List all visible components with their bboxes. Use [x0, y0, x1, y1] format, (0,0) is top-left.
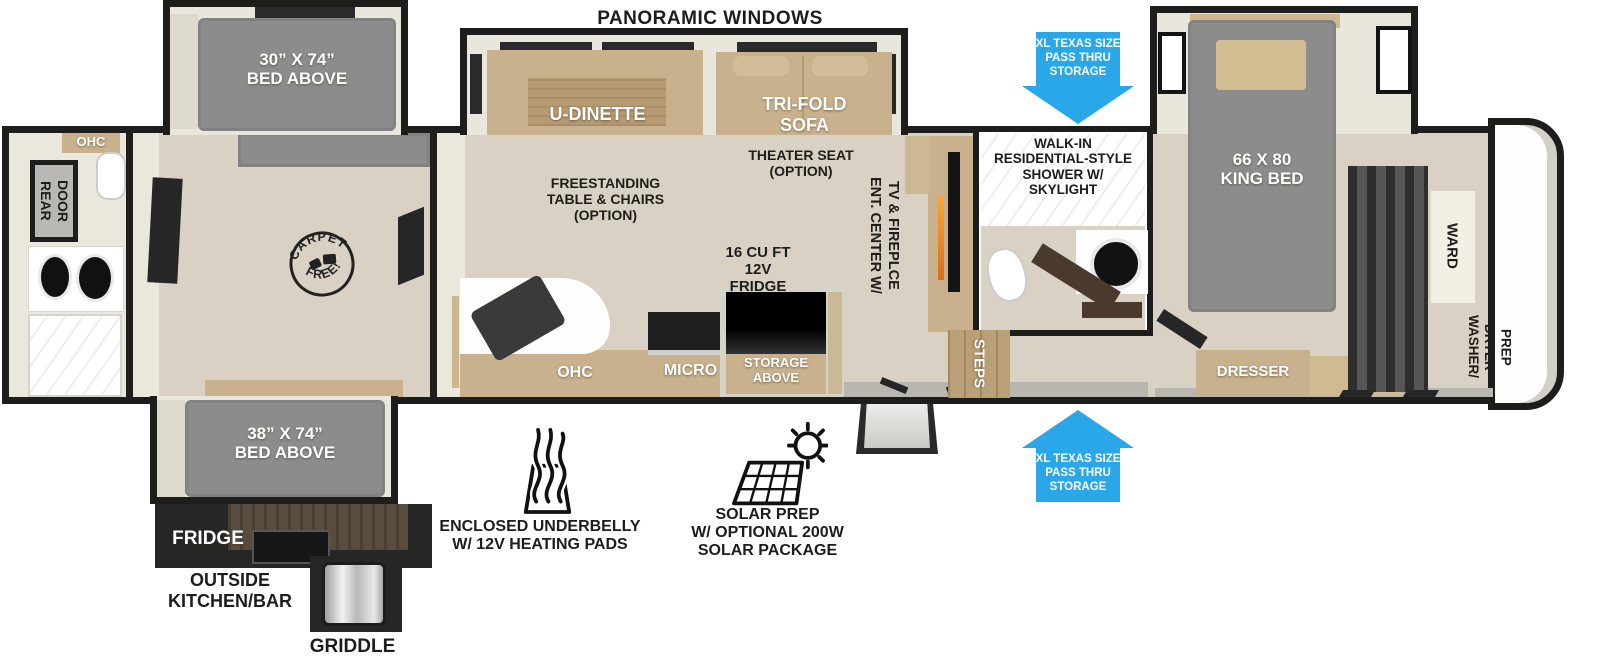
bunkroom-door — [452, 296, 459, 388]
freestanding-table-label: FREESTANDING TABLE & CHAIRS (OPTION) — [518, 176, 693, 224]
bedroom-vent-mark-1 — [1339, 390, 1375, 397]
theater-seat-label: THEATER SEAT (OPTION) — [722, 148, 880, 180]
enclosed-underbelly-label: ENCLOSED UNDERBELLY W/ 12V HEATING PADS — [425, 518, 655, 554]
rear-bath-sink-left — [38, 254, 72, 300]
tri-fold-sofa-label: TRI-FOLD SOFA — [737, 94, 872, 135]
sofa-pillow-right — [812, 56, 868, 76]
bunk-slide-cabinet — [170, 14, 198, 129]
pass-thru-bottom-label: XL TEXAS SIZE PASS THRU STORAGE — [1024, 452, 1132, 494]
outside-fridge-label: FRIDGE — [148, 528, 268, 550]
fireplace-glow — [938, 196, 944, 280]
storage-above-label: STORAGE ABOVE — [726, 356, 826, 386]
slide-corner-window-left — [470, 54, 482, 114]
washer-dryer-label: WASHER/ DRYER PREP — [1462, 294, 1516, 400]
walk-in-shower-label: WALK-IN RESIDENTIAL-STYLE SHOWER W/ SKYL… — [981, 136, 1145, 198]
rear-bath-shower — [28, 314, 122, 397]
bedroom-window-right — [1376, 26, 1412, 94]
panoramic-windows-label: PANORAMIC WINDOWS — [545, 8, 875, 30]
pass-thru-arrow-bottom: XL TEXAS SIZE PASS THRU STORAGE — [1022, 410, 1134, 502]
u-dinette-label: U-DINETTE — [515, 104, 680, 125]
microwave — [648, 312, 728, 355]
bunk-slide38-cabinet — [157, 400, 185, 497]
fridge-12v-label: 16 CU FT 12V FRIDGE — [704, 244, 812, 295]
ent-center-tv-screen — [948, 152, 960, 292]
bunkroom-corner-panel — [398, 207, 424, 286]
fridge-12v — [726, 292, 826, 354]
bunkroom-wall — [430, 126, 437, 404]
rear-bath-wall — [126, 126, 133, 404]
sofa-pillow-left — [733, 56, 789, 76]
ward-label: WARD — [1430, 190, 1474, 302]
fridge-side-cabinet — [828, 292, 842, 394]
bunk-bed-38-label: 38” X 74” BED ABOVE — [195, 424, 375, 463]
solar-prep-icon — [728, 420, 828, 510]
rear-ohc-label: OHC — [62, 135, 120, 150]
bunkroom-sideboard — [205, 380, 403, 397]
bunk-bed-30-label: 30” X 74” BED ABOVE — [212, 50, 382, 89]
rear-door-label: REAR DOOR — [33, 163, 75, 239]
griddle-label: GRIDDLE — [300, 636, 405, 658]
solar-prep-label: SOLAR PREP W/ OPTIONAL 200W SOLAR PACKAG… — [660, 506, 875, 561]
pass-thru-arrow-top: XL TEXAS SIZE PASS THRU STORAGE — [1022, 32, 1134, 124]
pass-thru-top-label: XL TEXAS SIZE PASS THRU STORAGE — [1024, 37, 1132, 79]
king-bed-pillow — [1216, 40, 1306, 90]
heating-pads-icon — [505, 422, 590, 517]
mid-bath-bench-2 — [1082, 302, 1142, 318]
outside-kitchen-label: OUTSIDE KITCHEN/BAR — [135, 570, 325, 611]
bunkroom-tv — [147, 177, 182, 283]
dresser-label: DRESSER — [1196, 363, 1310, 380]
closet-sliding-doors — [1348, 166, 1428, 392]
bedroom-vent-mark-2 — [1403, 390, 1439, 397]
convertible-bed-sofa — [238, 133, 430, 167]
rear-bath-sink-right — [76, 254, 114, 302]
steps-label: STEPS — [960, 330, 998, 398]
entry-steps-inner — [864, 404, 930, 448]
bedroom-window-left — [1158, 32, 1186, 94]
kitchen-ohc-label: OHC — [540, 364, 610, 382]
griddle-icon — [322, 562, 386, 626]
ent-center-tv-label: ENT. CENTER W/ TV & FIREPLCE — [860, 138, 908, 333]
ent-center-upper-cab — [905, 136, 929, 194]
rear-bath-toilet — [96, 152, 126, 200]
floorplan-canvas: OHC REAR DOOR CARPET FREE! 30” X 74” BED… — [0, 0, 1600, 666]
king-bed-label: 66 X 80 KING BED — [1200, 150, 1324, 189]
